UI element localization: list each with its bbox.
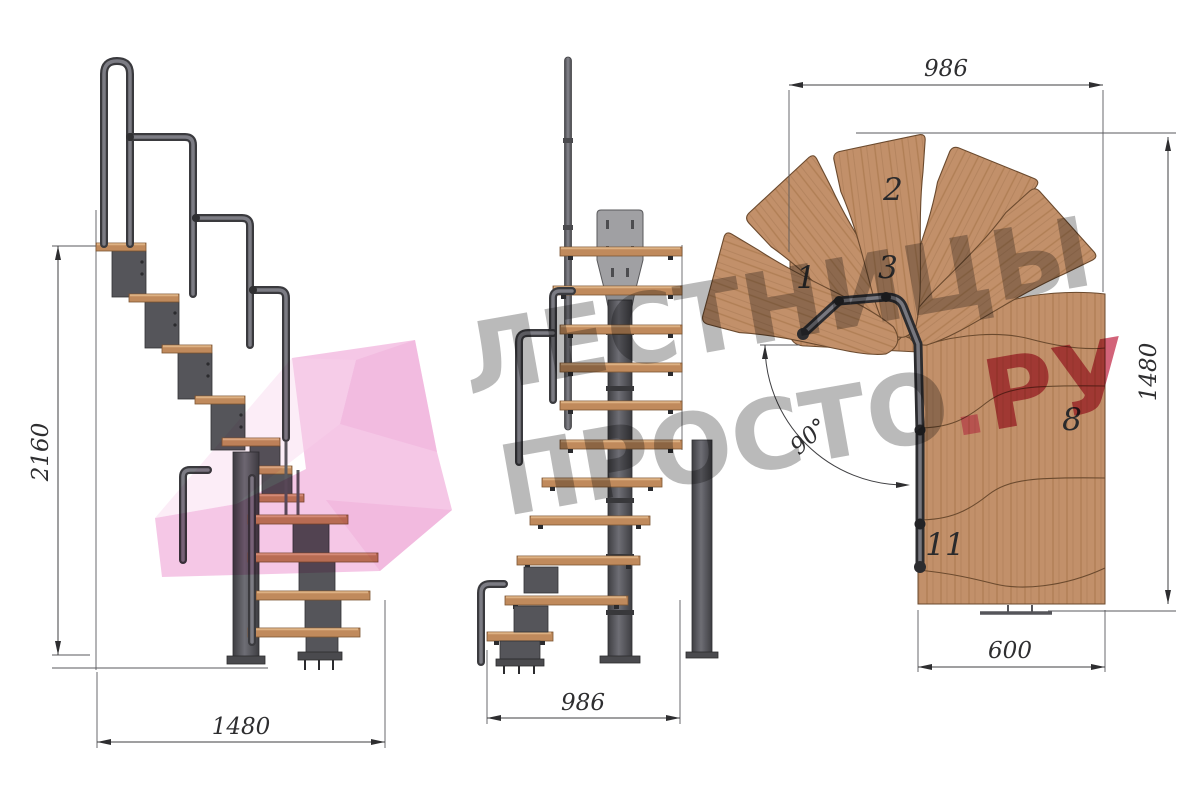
side-dim-height: 2160 xyxy=(28,246,96,655)
front-column-base xyxy=(600,656,640,663)
plan-dim-bottom: 600 xyxy=(918,610,1105,672)
dim-1480-side: 1480 xyxy=(212,714,271,740)
side-column-base xyxy=(227,656,265,664)
step-label-11: 11 xyxy=(925,527,964,563)
dim-986-front: 986 xyxy=(561,690,605,716)
plan-floor-bracket xyxy=(980,605,1052,613)
dim-1480-plan: 1480 xyxy=(1136,343,1162,402)
dim-2160: 2160 xyxy=(28,423,54,483)
drawing-canvas: 2160 1480 xyxy=(0,0,1200,790)
watermark-ru: РУ xyxy=(975,317,1138,454)
dim-600: 600 xyxy=(988,638,1032,664)
step-label-2: 2 xyxy=(882,172,903,208)
side-upper-flight xyxy=(96,243,245,450)
dim-986-plan: 986 xyxy=(924,56,968,82)
